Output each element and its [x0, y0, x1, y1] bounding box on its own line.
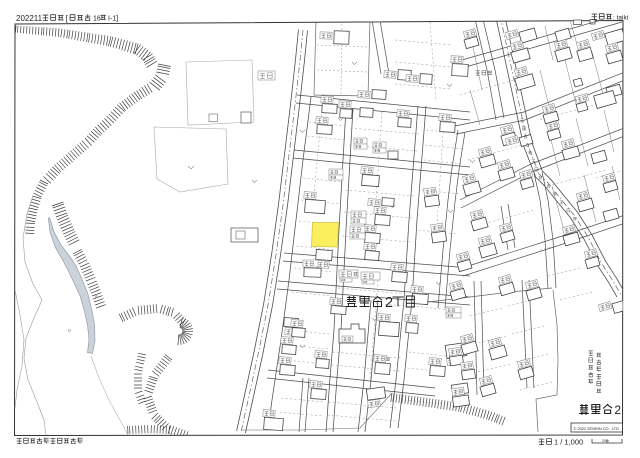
svg-text:I-1]: I-1] [108, 16, 118, 23]
svg-text:16: 16 [93, 16, 101, 23]
svg-text:2: 2 [385, 295, 393, 311]
svg-text:202211: 202211 [16, 14, 43, 23]
svg-text:2: 2 [614, 403, 621, 417]
svg-text:1 / 1,000: 1 / 1,000 [554, 438, 583, 447]
svg-text:o: o [68, 328, 71, 334]
svg-text:20m: 20m [602, 439, 609, 443]
svg-text:: taiki: : taiki [613, 15, 628, 22]
svg-text:© 2022 ZENRIN CO. .LTD: © 2022 ZENRIN CO. .LTD [574, 426, 620, 431]
svg-text:a: a [95, 294, 98, 300]
